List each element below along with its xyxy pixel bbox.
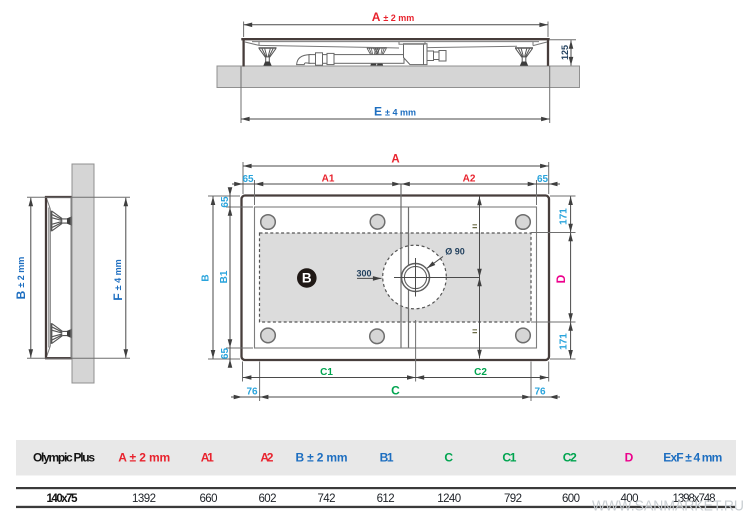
svg-text:171: 171 xyxy=(559,333,570,350)
svg-text:F± 4 mm: F± 4 mm xyxy=(111,259,125,300)
svg-text:A± 2 mm: A± 2 mm xyxy=(372,10,415,24)
svg-text:792: 792 xyxy=(504,493,522,505)
svg-text:C: C xyxy=(444,451,453,465)
svg-text:B ± 2 mm: B ± 2 mm xyxy=(296,451,348,465)
svg-text:65: 65 xyxy=(537,174,549,185)
svg-text:WWW.SANMARKET.RU: WWW.SANMARKET.RU xyxy=(592,499,744,515)
svg-text:A1: A1 xyxy=(322,174,335,185)
svg-text:B± 2 mm: B± 2 mm xyxy=(14,257,28,300)
svg-text:C1: C1 xyxy=(502,451,516,465)
svg-text:1392: 1392 xyxy=(132,493,156,505)
svg-text:65: 65 xyxy=(220,196,231,208)
svg-text:E± 4 mm: E± 4 mm xyxy=(374,105,416,119)
svg-text:C: C xyxy=(391,384,400,398)
svg-text:C2: C2 xyxy=(563,451,577,465)
svg-text:65: 65 xyxy=(242,174,254,185)
svg-text:171: 171 xyxy=(559,208,570,225)
svg-text:600: 600 xyxy=(562,493,580,505)
svg-text:660: 660 xyxy=(200,493,218,505)
svg-text:D: D xyxy=(554,274,568,283)
svg-text:1240: 1240 xyxy=(437,493,461,505)
svg-text:602: 602 xyxy=(259,493,277,505)
svg-text:B1: B1 xyxy=(219,270,230,283)
svg-text:A2: A2 xyxy=(260,451,273,465)
svg-text:742: 742 xyxy=(318,493,336,505)
svg-text:B: B xyxy=(201,274,212,281)
svg-text:76: 76 xyxy=(246,387,258,398)
svg-text:65: 65 xyxy=(220,348,231,360)
svg-text:140x75: 140x75 xyxy=(47,493,79,505)
svg-text:D: D xyxy=(625,451,634,465)
svg-text:A ± 2 mm: A ± 2 mm xyxy=(118,451,170,465)
svg-text:Olympic Plus: Olympic Plus xyxy=(33,451,95,465)
svg-text:300: 300 xyxy=(356,269,371,279)
svg-text:B1: B1 xyxy=(380,451,394,465)
svg-text:C1: C1 xyxy=(320,367,333,378)
svg-text:125: 125 xyxy=(560,45,570,60)
svg-text:Ø 90: Ø 90 xyxy=(445,247,465,257)
svg-text:612: 612 xyxy=(377,493,395,505)
svg-text:B: B xyxy=(302,271,312,286)
svg-text:A2: A2 xyxy=(463,174,476,185)
svg-text:C2: C2 xyxy=(474,367,487,378)
svg-text:76: 76 xyxy=(534,387,546,398)
svg-text:A: A xyxy=(391,154,399,166)
svg-text:A1: A1 xyxy=(201,451,214,465)
svg-text:ExF ± 4 mm: ExF ± 4 mm xyxy=(663,451,722,465)
